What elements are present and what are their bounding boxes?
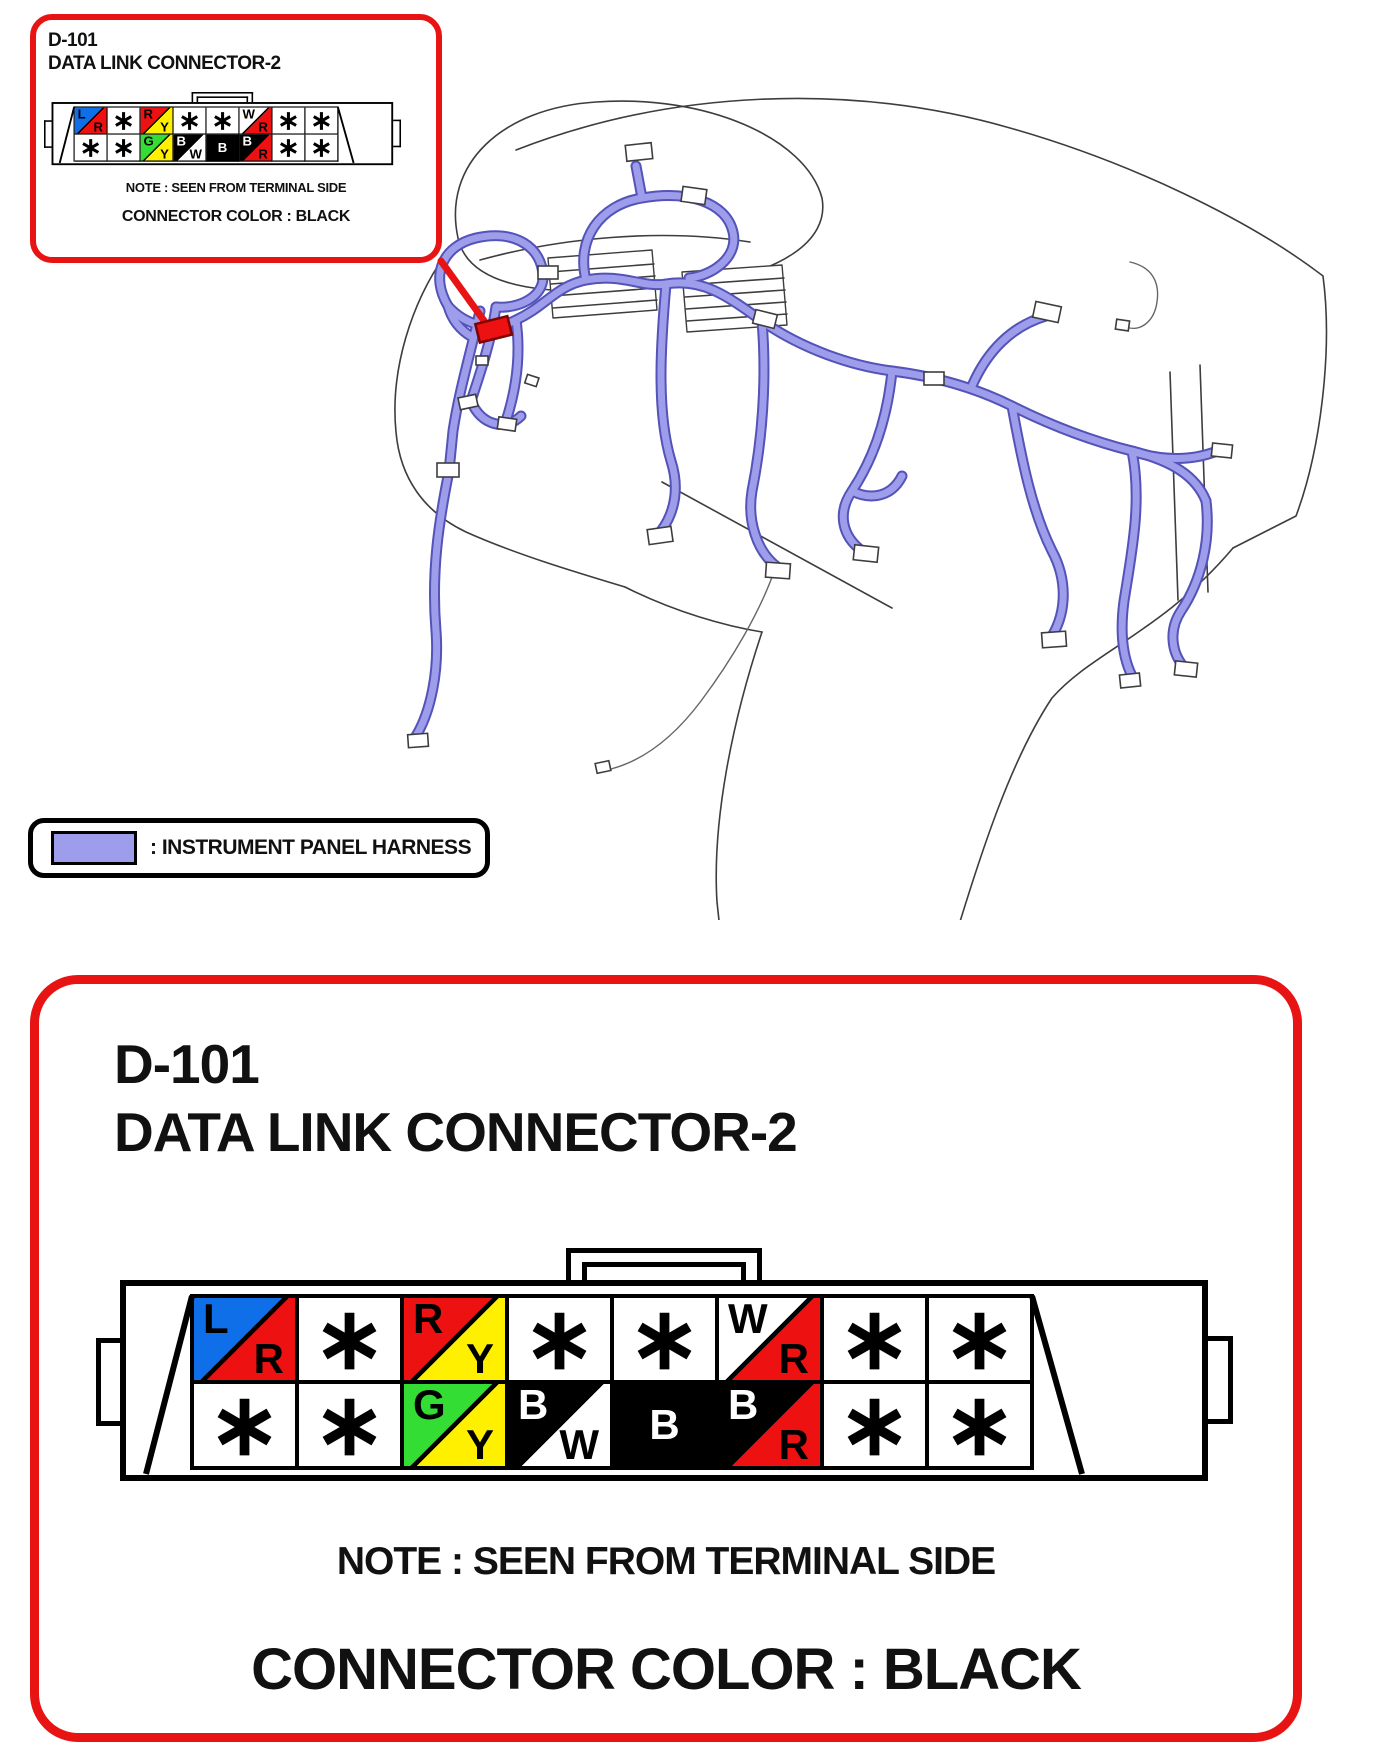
unused-pin-asterisk: ∗: [75, 135, 107, 161]
connector-side-tab-right: [1206, 1336, 1233, 1424]
pin-cell: ∗: [824, 1298, 929, 1384]
pin-cell: ∗: [929, 1384, 1034, 1470]
pin-cell: B: [207, 135, 240, 162]
pin-wire-code: Y: [160, 147, 169, 162]
pin-cell: B: [614, 1384, 719, 1470]
pin-cell: ∗: [306, 135, 339, 162]
pin-cell: BW: [174, 135, 207, 162]
pin-wire-code: B: [518, 1382, 548, 1428]
pin-cell: BR: [719, 1384, 824, 1470]
unused-pin-asterisk: ∗: [299, 1298, 400, 1380]
dashboard-harness-illustration: [330, 80, 1340, 920]
pin-wire-code: B: [177, 134, 187, 149]
dashboard-outline: [395, 98, 1326, 920]
pin-wire-code: L: [78, 107, 86, 122]
pin-cell: GY: [404, 1384, 509, 1470]
connector-name: DATA LINK CONNECTOR-2: [114, 1100, 797, 1164]
connector-side-tab-left: [96, 1338, 122, 1426]
pin-wire-code: R: [779, 1422, 809, 1468]
page: { "palette": { "accent_red": "#e81414", …: [0, 0, 1380, 1755]
pin-wire-code: W: [728, 1296, 768, 1342]
unused-pin-asterisk: ∗: [108, 135, 140, 161]
pin-cell: WR: [719, 1298, 824, 1384]
unused-pin-asterisk: ∗: [614, 1298, 715, 1380]
pin-wire-code: B: [728, 1382, 758, 1428]
connector-boxes: [408, 143, 1233, 774]
terminal-side-note: NOTE : SEEN FROM TERMINAL SIDE: [39, 1540, 1293, 1584]
pin-wire-code: B: [207, 135, 239, 161]
pin-cell: ∗: [174, 108, 207, 135]
pin-cell: RY: [404, 1298, 509, 1384]
pin-cell: ∗: [509, 1298, 614, 1384]
pin-cell: ∗: [108, 135, 141, 162]
pin-cell: LR: [194, 1298, 299, 1384]
pin-cell: ∗: [306, 108, 339, 135]
pin-wire-code: B: [242, 134, 252, 149]
harness-color-swatch: [51, 831, 137, 865]
pin-cell: ∗: [299, 1298, 404, 1384]
pin-cell: ∗: [207, 108, 240, 135]
unused-pin-asterisk: ∗: [929, 1384, 1030, 1466]
pin-wire-code: L: [203, 1296, 229, 1342]
pin-wire-code: W: [189, 147, 201, 162]
connector-name: DATA LINK CONNECTOR-2: [48, 53, 281, 75]
unused-pin-asterisk: ∗: [273, 135, 305, 161]
pin-wire-code: G: [144, 134, 154, 149]
pin-wire-code: B: [614, 1384, 715, 1466]
pin-cell: ∗: [929, 1298, 1034, 1384]
unused-pin-asterisk: ∗: [108, 108, 140, 134]
connector-detail-box: D-101 DATA LINK CONNECTOR-2 LR∗RY∗∗WR∗∗∗…: [30, 975, 1302, 1742]
pin-cell: ∗: [824, 1384, 929, 1470]
pin-cell: ∗: [75, 135, 108, 162]
pin-cell: ∗: [108, 108, 141, 135]
connector-id: D-101: [114, 1032, 259, 1096]
pin-cell: ∗: [194, 1384, 299, 1470]
connector-id: D-101: [48, 30, 97, 52]
unused-pin-asterisk: ∗: [174, 108, 206, 134]
pin-wire-code: Y: [160, 120, 169, 135]
unused-pin-asterisk: ∗: [306, 135, 338, 161]
unused-pin-asterisk: ∗: [824, 1384, 925, 1466]
pin-cell: ∗: [299, 1384, 404, 1470]
connector-pinout-small: LR∗RY∗∗WR∗∗∗∗GYBWBBR∗∗: [44, 92, 401, 166]
legend-label: : INSTRUMENT PANEL HARNESS: [150, 836, 471, 860]
pin-wire-code: Y: [466, 1336, 494, 1382]
pin-wire-code: R: [258, 147, 268, 162]
pin-wire-code: R: [413, 1296, 443, 1342]
pin-cell: RY: [141, 108, 174, 135]
unused-pin-asterisk: ∗: [194, 1384, 295, 1466]
pin-grid: LR∗RY∗∗WR∗∗∗∗GYBWBBR∗∗: [74, 106, 339, 161]
unused-pin-asterisk: ∗: [929, 1298, 1030, 1380]
pin-cell: GY: [141, 135, 174, 162]
pin-grid: LR∗RY∗∗WR∗∗∗∗GYBWBBR∗∗: [190, 1294, 1034, 1470]
thin-wires: [611, 262, 1158, 769]
connector-side-tab-right: [393, 120, 401, 148]
pin-cell: LR: [75, 108, 108, 135]
pin-cell: ∗: [273, 135, 306, 162]
pin-wire-code: G: [413, 1382, 446, 1428]
unused-pin-asterisk: ∗: [273, 108, 305, 134]
pin-wire-code: Y: [466, 1422, 494, 1468]
connector-color-label: CONNECTOR COLOR : BLACK: [39, 1636, 1293, 1703]
pin-cell: BW: [509, 1384, 614, 1470]
pin-cell: ∗: [273, 108, 306, 135]
connector-callout-box: D-101 DATA LINK CONNECTOR-2 LR∗RY∗∗WR∗∗∗…: [30, 14, 442, 263]
pin-cell: BR: [240, 135, 273, 162]
terminal-side-note: NOTE : SEEN FROM TERMINAL SIDE: [36, 180, 436, 195]
pin-cell: ∗: [614, 1298, 719, 1384]
pin-cell: WR: [240, 108, 273, 135]
pin-wire-code: W: [559, 1422, 599, 1468]
connector-color-label: CONNECTOR COLOR : BLACK: [36, 208, 436, 226]
legend-box: : INSTRUMENT PANEL HARNESS: [28, 818, 490, 878]
pin-wire-code: R: [779, 1336, 809, 1382]
pin-wire-code: W: [242, 107, 254, 122]
pin-wire-code: R: [258, 120, 268, 135]
unused-pin-asterisk: ∗: [207, 108, 239, 134]
unused-pin-asterisk: ∗: [824, 1298, 925, 1380]
pin-wire-code: R: [144, 107, 154, 122]
unused-pin-asterisk: ∗: [306, 108, 338, 134]
connector-pinout-large: LR∗RY∗∗WR∗∗∗∗GYBWBBR∗∗: [96, 1248, 1233, 1482]
unused-pin-asterisk: ∗: [299, 1384, 400, 1466]
unused-pin-asterisk: ∗: [509, 1298, 610, 1380]
harness-fill-pass: [416, 166, 1217, 736]
